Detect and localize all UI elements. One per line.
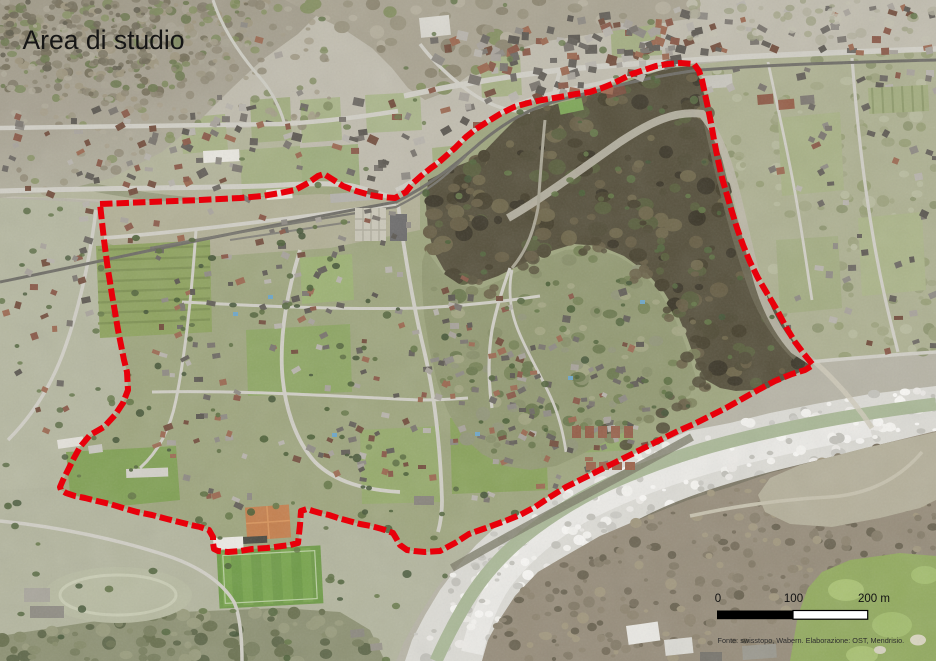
- svg-text:200 m: 200 m: [858, 593, 890, 605]
- svg-text:0: 0: [715, 593, 721, 605]
- svg-text:100: 100: [784, 593, 803, 605]
- svg-text:Area di studio: Area di studio: [23, 25, 185, 55]
- svg-text:Fonte: swisstopo, Wabern. Elab: Fonte: swisstopo, Wabern. Elaborazione: …: [718, 636, 905, 645]
